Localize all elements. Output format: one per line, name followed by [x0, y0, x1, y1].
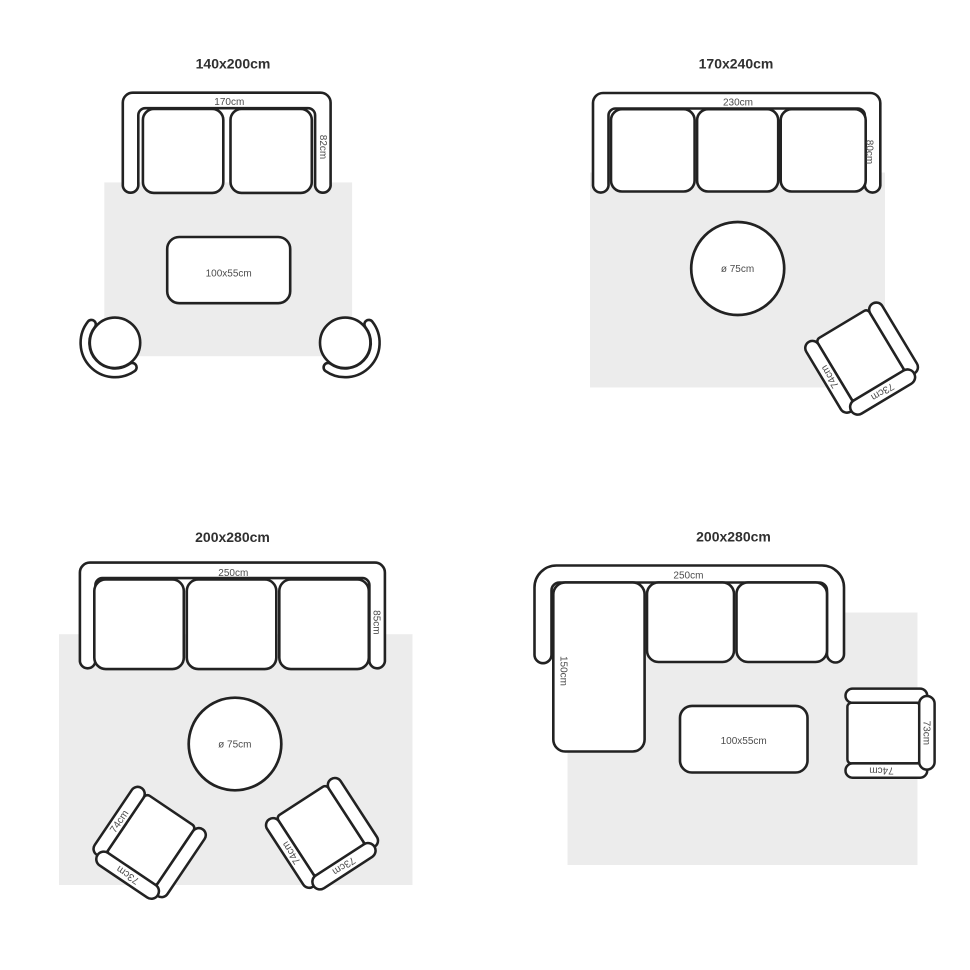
- svg-text:ø 75cm: ø 75cm: [721, 264, 754, 275]
- svg-text:250cm: 250cm: [218, 568, 248, 579]
- svg-text:74cm: 74cm: [869, 764, 893, 775]
- svg-text:82cm: 82cm: [317, 135, 328, 159]
- svg-text:100x55cm: 100x55cm: [206, 269, 252, 280]
- svg-text:80cm: 80cm: [863, 140, 874, 164]
- svg-text:100x55cm: 100x55cm: [721, 736, 767, 747]
- svg-text:150cm: 150cm: [558, 656, 569, 686]
- svg-text:170cm: 170cm: [214, 97, 244, 108]
- svg-text:ø 75cm: ø 75cm: [218, 740, 251, 751]
- svg-text:140x200cm: 140x200cm: [196, 56, 271, 72]
- svg-text:200x280cm: 200x280cm: [195, 529, 270, 545]
- svg-text:200x280cm: 200x280cm: [696, 528, 771, 544]
- svg-text:230cm: 230cm: [723, 97, 753, 108]
- svg-text:250cm: 250cm: [673, 571, 703, 582]
- svg-text:85cm: 85cm: [370, 610, 381, 634]
- svg-text:73cm: 73cm: [921, 721, 932, 745]
- svg-text:170x240cm: 170x240cm: [699, 56, 774, 72]
